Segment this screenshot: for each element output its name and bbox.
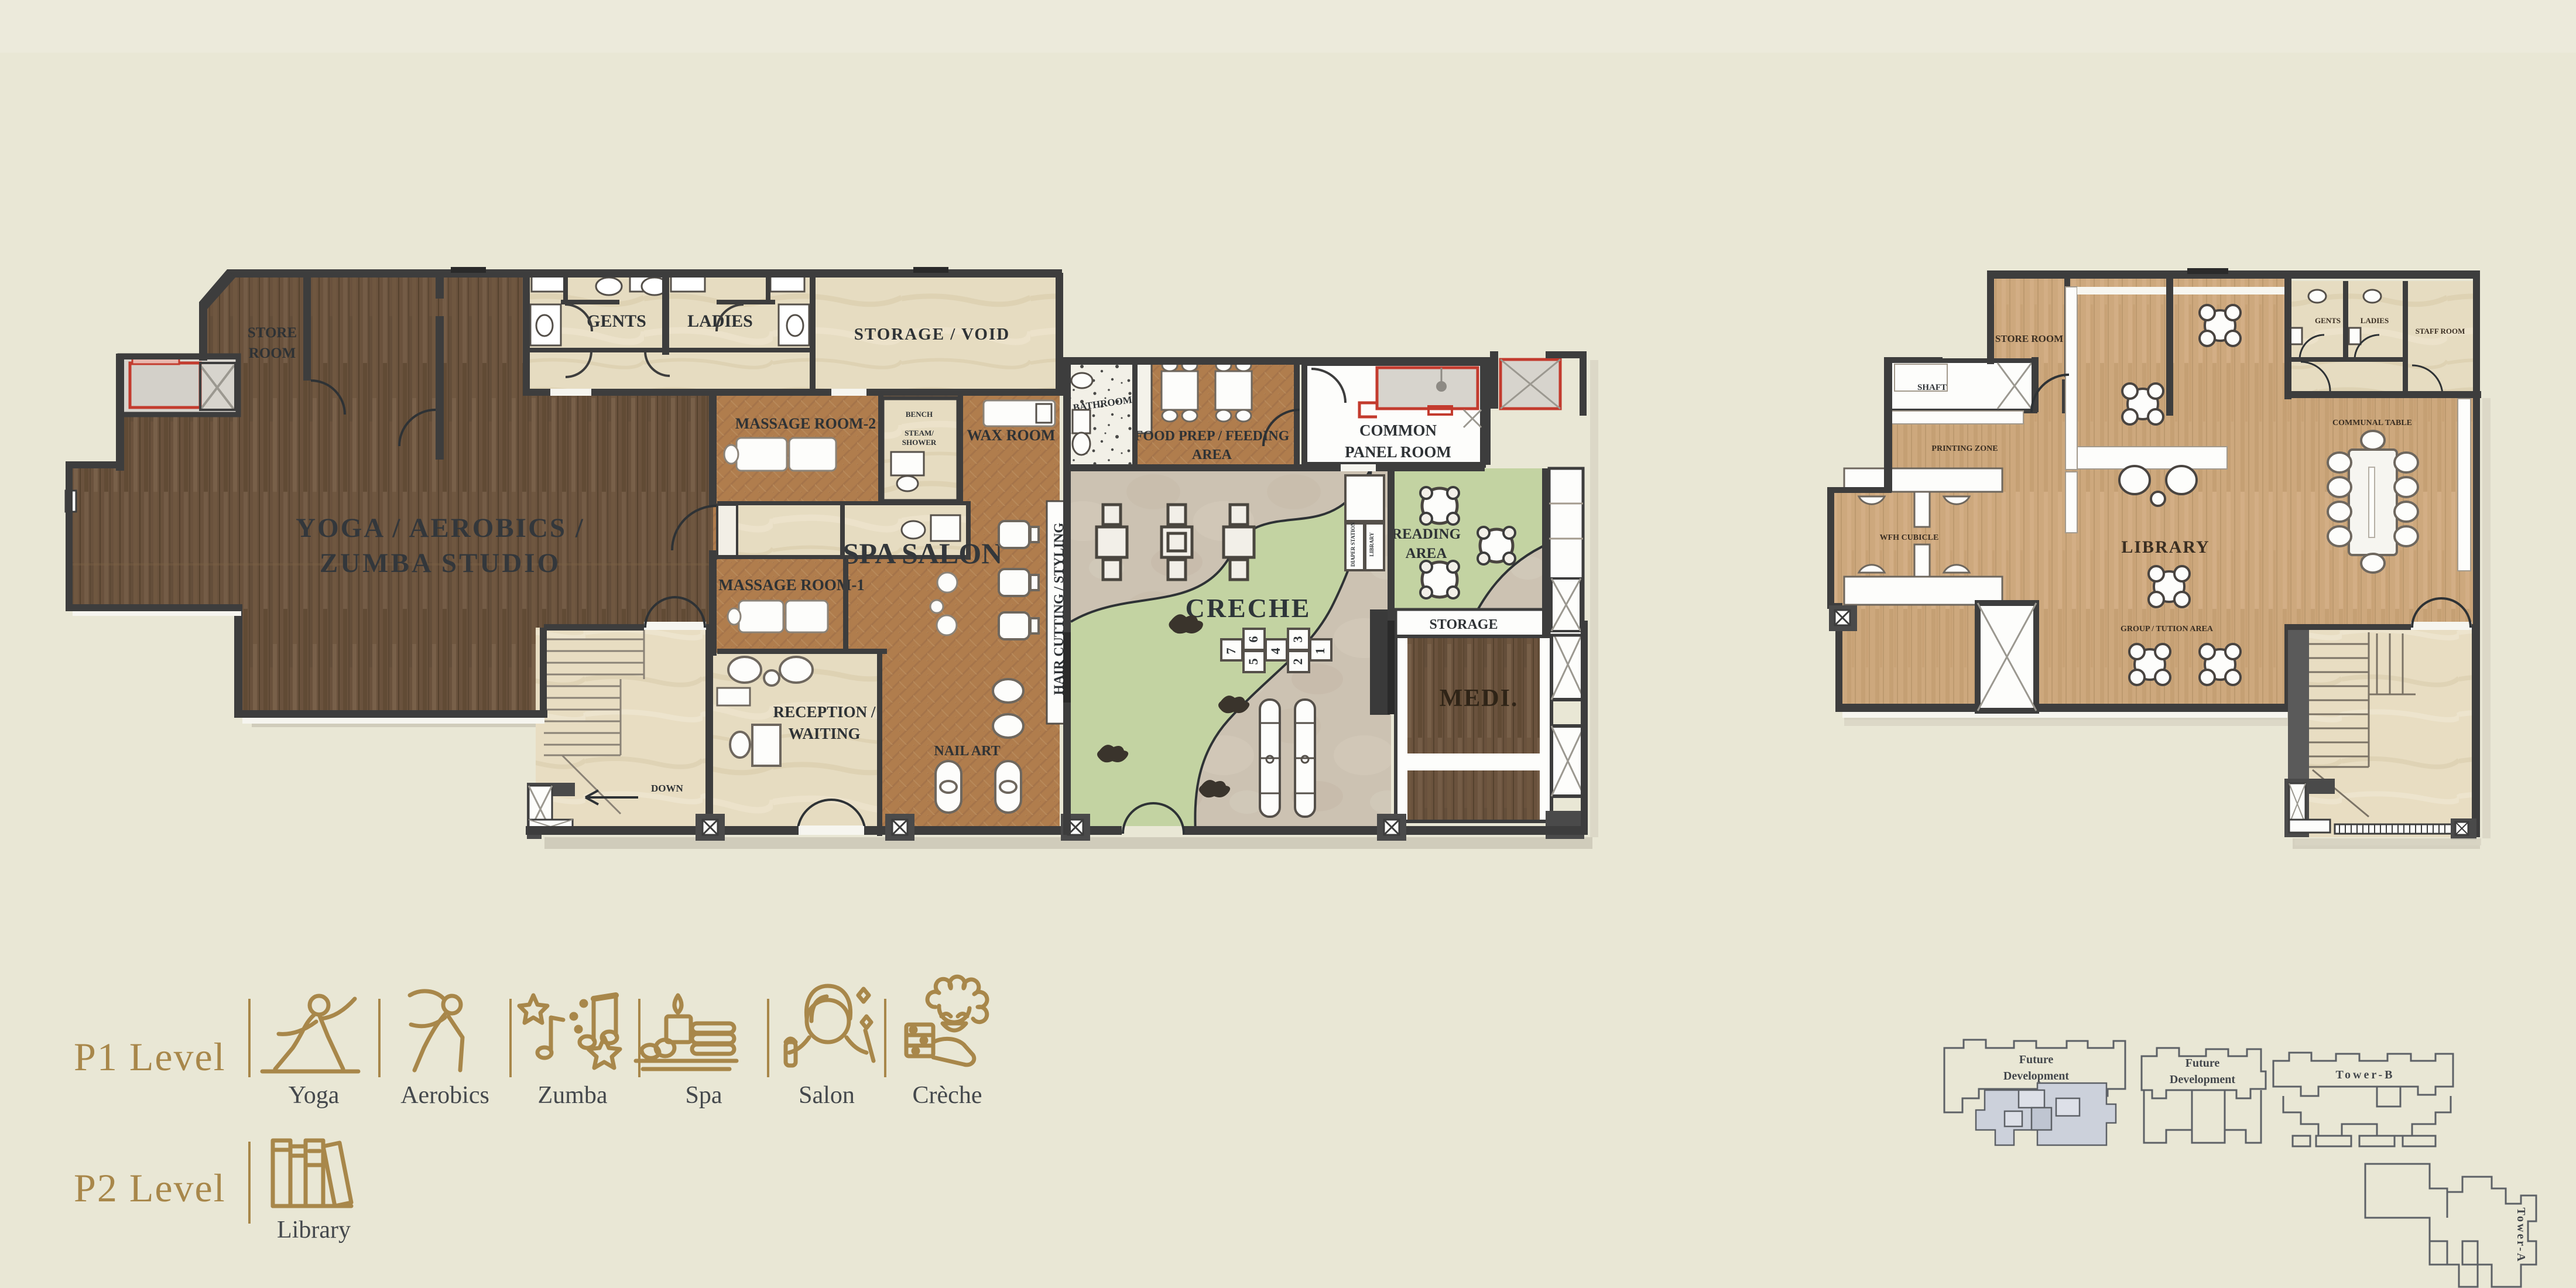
svg-text:GENTS: GENTS: [587, 311, 646, 331]
svg-text:MEDI.: MEDI.: [1440, 685, 1519, 712]
svg-text:3: 3: [1290, 636, 1305, 643]
svg-text:GROUP / TUTION AREA: GROUP / TUTION AREA: [2121, 625, 2214, 633]
svg-text:Yoga: Yoga: [289, 1082, 340, 1109]
svg-text:Salon: Salon: [799, 1082, 855, 1109]
svg-text:LADIES: LADIES: [2361, 316, 2389, 325]
svg-text:Future: Future: [2186, 1057, 2220, 1070]
svg-text:ROOM: ROOM: [249, 345, 296, 361]
svg-text:2: 2: [1290, 659, 1305, 665]
svg-text:STORE ROOM: STORE ROOM: [1995, 333, 2063, 344]
svg-text:Development: Development: [2003, 1070, 2070, 1083]
svg-text:Future: Future: [2019, 1053, 2054, 1066]
svg-text:GENTS: GENTS: [2315, 316, 2341, 325]
svg-text:WAITING: WAITING: [788, 725, 860, 742]
svg-text:6: 6: [1246, 636, 1260, 643]
svg-text:STORAGE: STORAGE: [1430, 617, 1498, 632]
svg-text:AREA: AREA: [1406, 546, 1447, 561]
svg-text:5: 5: [1246, 659, 1260, 665]
svg-text:Tower-A: Tower-A: [2515, 1207, 2527, 1263]
svg-text:1: 1: [1313, 648, 1327, 655]
svg-text:SHAFT: SHAFT: [1917, 383, 1947, 392]
svg-text:Zumba: Zumba: [538, 1082, 608, 1109]
svg-text:WAX ROOM: WAX ROOM: [967, 427, 1056, 444]
svg-text:SPA SALON: SPA SALON: [843, 537, 1003, 570]
svg-text:READING: READING: [1392, 526, 1461, 542]
svg-text:ZUMBA STUDIO: ZUMBA STUDIO: [320, 548, 561, 578]
svg-text:Library: Library: [277, 1217, 351, 1244]
svg-text:SHOWER: SHOWER: [902, 438, 937, 447]
svg-text:LIBRARY: LIBRARY: [2121, 537, 2210, 557]
svg-text:COMMUNAL TABLE: COMMUNAL TABLE: [2332, 419, 2412, 427]
svg-text:CRECHE: CRECHE: [1186, 593, 1311, 623]
svg-text:RECEPTION /: RECEPTION /: [773, 703, 876, 721]
svg-text:4: 4: [1268, 648, 1283, 655]
svg-text:STORE: STORE: [248, 325, 297, 341]
svg-text:LIBRARY: LIBRARY: [1369, 532, 1375, 557]
svg-text:P1 Level: P1 Level: [74, 1034, 226, 1079]
svg-text:Spa: Spa: [686, 1082, 722, 1109]
svg-text:PANEL ROOM: PANEL ROOM: [1345, 443, 1451, 461]
svg-text:Development: Development: [2170, 1073, 2236, 1086]
svg-text:DIAPER STATION: DIAPER STATION: [1350, 522, 1356, 567]
svg-text:STORAGE / VOID: STORAGE / VOID: [854, 325, 1010, 344]
svg-text:7: 7: [1224, 648, 1238, 655]
svg-text:WFH CUBICLE: WFH CUBICLE: [1880, 533, 1939, 542]
svg-text:AREA: AREA: [1192, 447, 1232, 463]
svg-text:MASSAGE ROOM-2: MASSAGE ROOM-2: [735, 415, 876, 432]
svg-text:BENCH: BENCH: [906, 410, 933, 419]
svg-text:COMMON: COMMON: [1359, 422, 1437, 439]
svg-text:Crèche: Crèche: [913, 1082, 982, 1109]
svg-text:DOWN: DOWN: [651, 783, 684, 794]
svg-text:MASSAGE ROOM-1: MASSAGE ROOM-1: [718, 576, 865, 594]
svg-text:STAFF ROOM: STAFF ROOM: [2416, 327, 2465, 335]
svg-text:STEAM/: STEAM/: [905, 429, 934, 437]
svg-text:P2 Level: P2 Level: [74, 1166, 226, 1210]
svg-text:LADIES: LADIES: [687, 311, 753, 331]
svg-text:YOGA / AEROBICS /: YOGA / AEROBICS /: [296, 513, 585, 543]
svg-text:PRINTING ZONE: PRINTING ZONE: [1931, 444, 1998, 453]
svg-text:NAIL ART: NAIL ART: [934, 744, 1000, 759]
svg-text:Tower-B: Tower-B: [2336, 1068, 2395, 1081]
svg-text:Aerobics: Aerobics: [400, 1082, 489, 1109]
